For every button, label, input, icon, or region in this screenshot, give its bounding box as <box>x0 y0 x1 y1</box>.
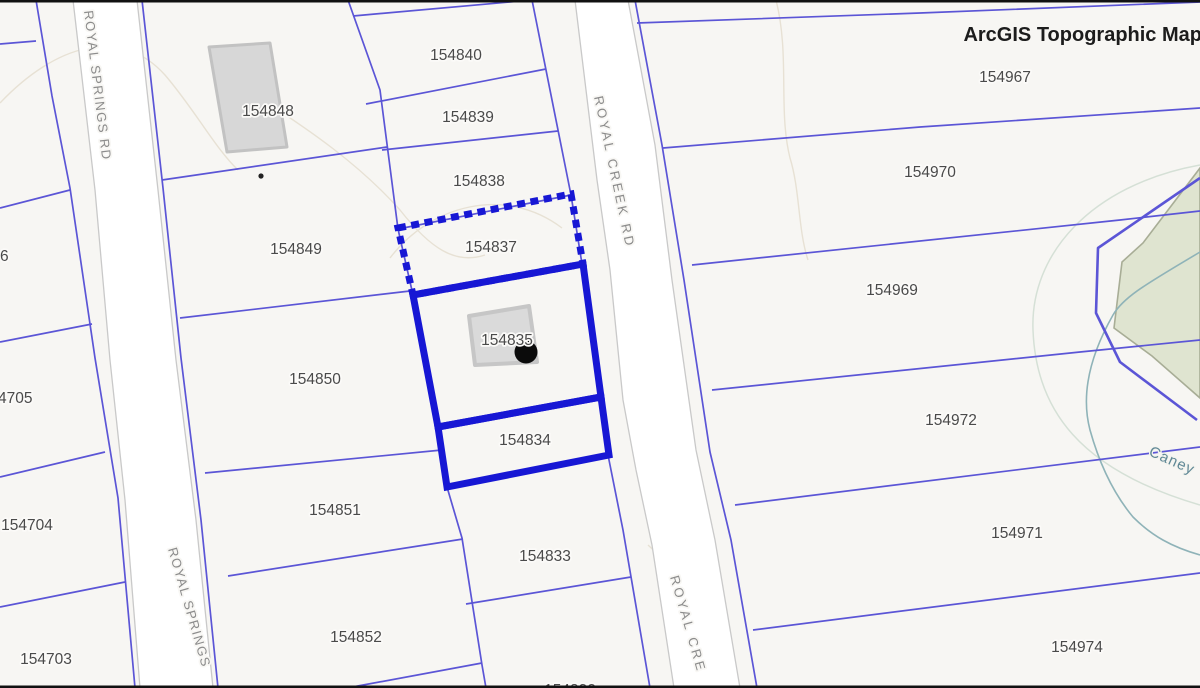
parcel-label: 154852 <box>330 629 382 646</box>
parcel-label: 4705 <box>0 390 32 407</box>
parcel-label: 154969 <box>866 282 918 299</box>
parcel-label: 154851 <box>309 502 361 519</box>
parcel-label: 154834 <box>499 432 551 449</box>
small-point-marker <box>258 173 263 178</box>
map-canvas: 154840 154839 154838 154837 154835 15483… <box>0 0 1200 688</box>
parcel-label: 154971 <box>991 525 1043 542</box>
parcel-label: 154838 <box>453 173 505 190</box>
map-title: ArcGIS Topographic Map <box>963 24 1200 46</box>
parcel-label: 154970 <box>904 164 956 181</box>
parcel-label: 154972 <box>925 412 977 429</box>
parcel-label: 154850 <box>289 371 341 388</box>
parcel-label: 154849 <box>270 241 322 258</box>
top-border <box>0 0 1200 3</box>
parcel-label: 154839 <box>442 109 494 126</box>
parcel-label: 154833 <box>519 548 571 565</box>
parcel-label: 154840 <box>430 47 482 64</box>
parcel-label: 154704 <box>1 517 53 534</box>
parcel-label: 154848 <box>242 103 294 120</box>
parcel-label: 154974 <box>1051 639 1103 656</box>
parcel-label: 154837 <box>465 239 517 256</box>
map-viewport[interactable]: 154840 154839 154838 154837 154835 15483… <box>0 0 1200 688</box>
parcel-label: 154967 <box>979 69 1031 86</box>
parcel-label: 6 <box>0 248 9 265</box>
parcel-label: 154703 <box>20 651 72 668</box>
parcel-label: 154835 <box>481 332 533 349</box>
